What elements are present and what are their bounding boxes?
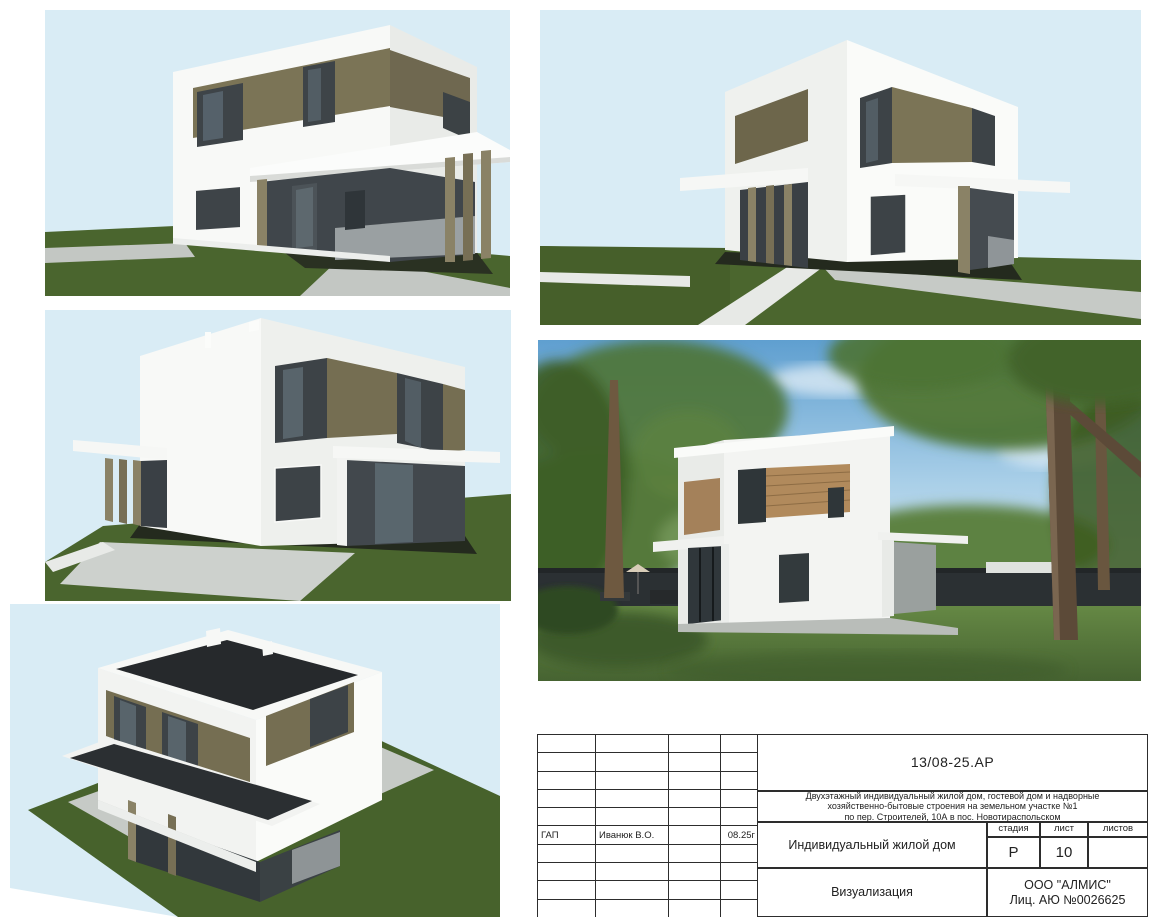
- render-view-front-left: [45, 10, 510, 296]
- sheet-view-title: Визуализация: [757, 868, 987, 917]
- project-description-line1: Двухэтажный индивидуальный жилой дом, го…: [806, 791, 1100, 801]
- project-description-line2: хозяйственно-бытовые строения на земельн…: [827, 801, 1077, 811]
- sheets-total-label: листов: [1088, 822, 1148, 837]
- house-illustration: [45, 10, 510, 296]
- house-illustration: [10, 604, 500, 917]
- render-photorealistic: [538, 340, 1141, 681]
- render-view-corner-front: [540, 10, 1141, 325]
- house-illustration: [45, 310, 511, 601]
- signature-date: 08.25г: [721, 826, 758, 844]
- signature-name: Иванюк В.О.: [596, 826, 669, 844]
- company-info: ООО "АЛМИС" Лиц. АЮ №0026625: [987, 868, 1148, 917]
- company-name: ООО "АЛМИС": [1024, 878, 1111, 892]
- render-view-rear-corner: [45, 310, 511, 601]
- project-description: Двухэтажный индивидуальный жилой дом, го…: [757, 791, 1148, 822]
- title-block: ГАП Иванюк В.О. 08.25г 13/08-25.АР Двухэ…: [537, 734, 1148, 917]
- house-photo-illustration: [538, 340, 1141, 681]
- sheets-total-value: [1088, 837, 1148, 868]
- company-license: Лиц. АЮ №0026625: [1010, 893, 1126, 907]
- house-illustration: [540, 10, 1141, 325]
- document-code: 13/08-25.АР: [757, 734, 1148, 791]
- sheet-number: 10: [1040, 837, 1088, 868]
- object-name: Индивидуальный жилой дом: [757, 822, 987, 868]
- signature-role: ГАП: [538, 826, 596, 844]
- drawing-sheet: ГАП Иванюк В.О. 08.25г 13/08-25.АР Двухэ…: [0, 0, 1150, 917]
- stage-value: Р: [987, 837, 1040, 868]
- signature-table: ГАП Иванюк В.О. 08.25г: [537, 734, 757, 917]
- sheet-label: лист: [1040, 822, 1088, 837]
- render-view-aerial: [10, 604, 500, 917]
- stage-label: стадия: [987, 822, 1040, 837]
- project-description-line3: по пер. Строителей, 10А в пос. Новотирас…: [844, 812, 1060, 822]
